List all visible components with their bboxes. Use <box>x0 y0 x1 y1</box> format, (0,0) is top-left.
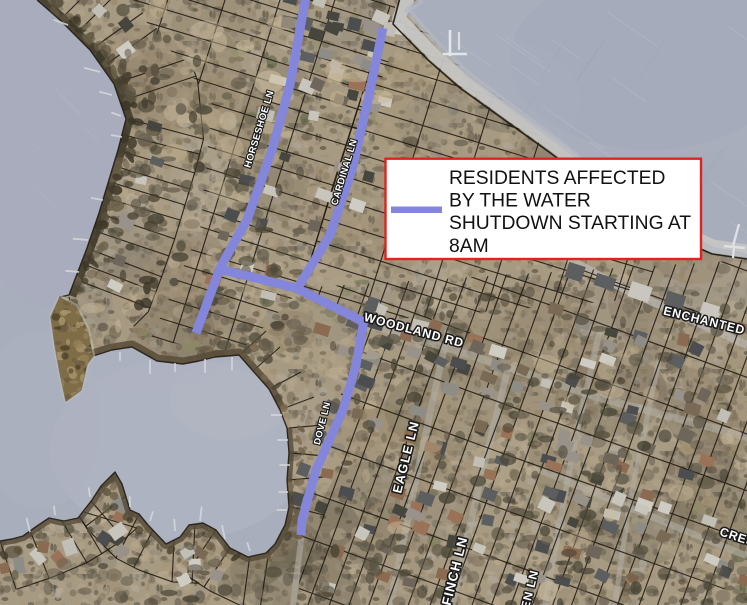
svg-text:8AM: 8AM <box>449 236 489 257</box>
svg-text:RESIDENTS AFFECTED: RESIDENTS AFFECTED <box>449 168 665 189</box>
svg-text:BY THE WATER: BY THE WATER <box>449 191 591 212</box>
svg-text:SHUTDOWN STARTING AT: SHUTDOWN STARTING AT <box>449 213 691 234</box>
